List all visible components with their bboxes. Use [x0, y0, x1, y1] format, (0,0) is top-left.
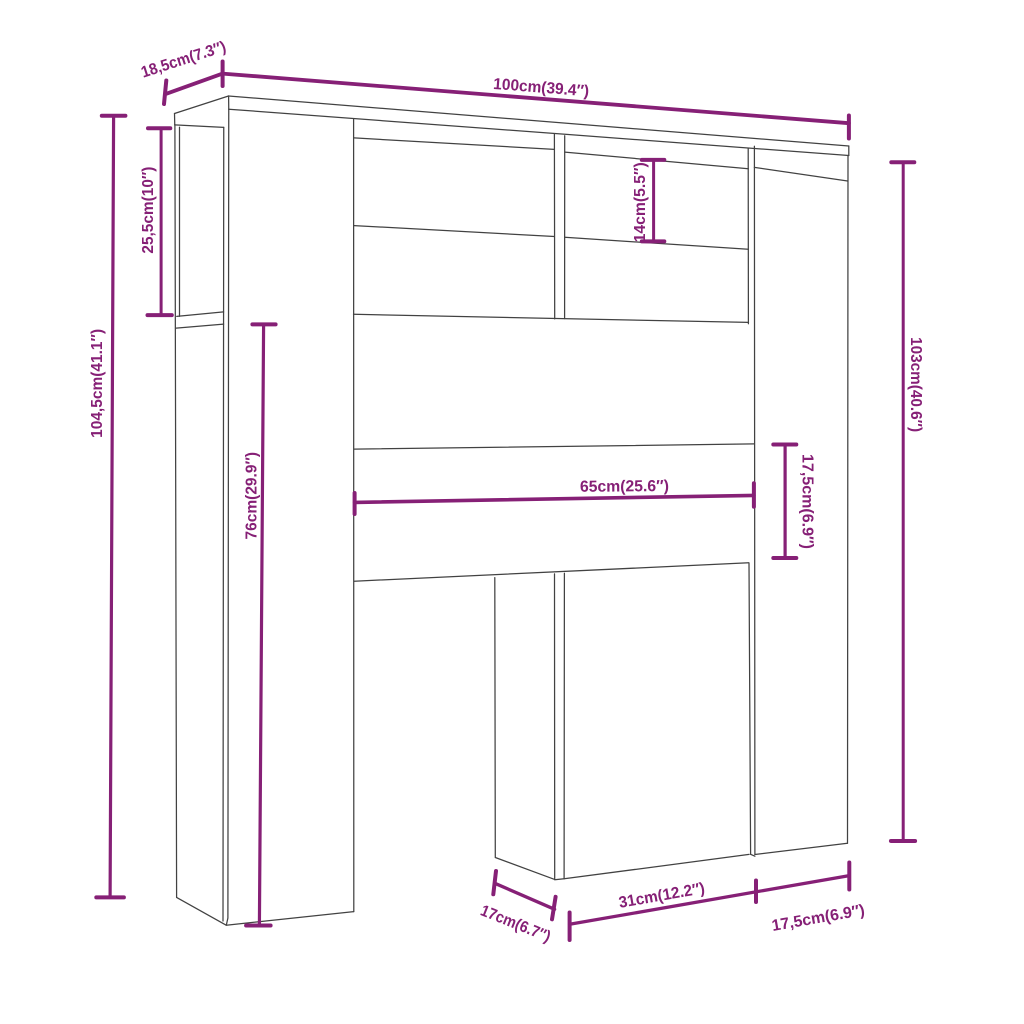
svg-text:103cm(40.6″): 103cm(40.6″)	[907, 337, 924, 432]
svg-text:76cm(29.9″): 76cm(29.9″)	[244, 452, 261, 540]
svg-text:17,5cm(6.9″): 17,5cm(6.9″)	[798, 454, 815, 549]
svg-text:25,5cm(10″): 25,5cm(10″)	[140, 167, 157, 254]
svg-text:104,5cm(41.1″): 104,5cm(41.1″)	[89, 329, 106, 438]
svg-text:65cm(25.6″): 65cm(25.6″)	[580, 478, 669, 496]
svg-text:14cm(5.5″): 14cm(5.5″)	[632, 162, 649, 242]
